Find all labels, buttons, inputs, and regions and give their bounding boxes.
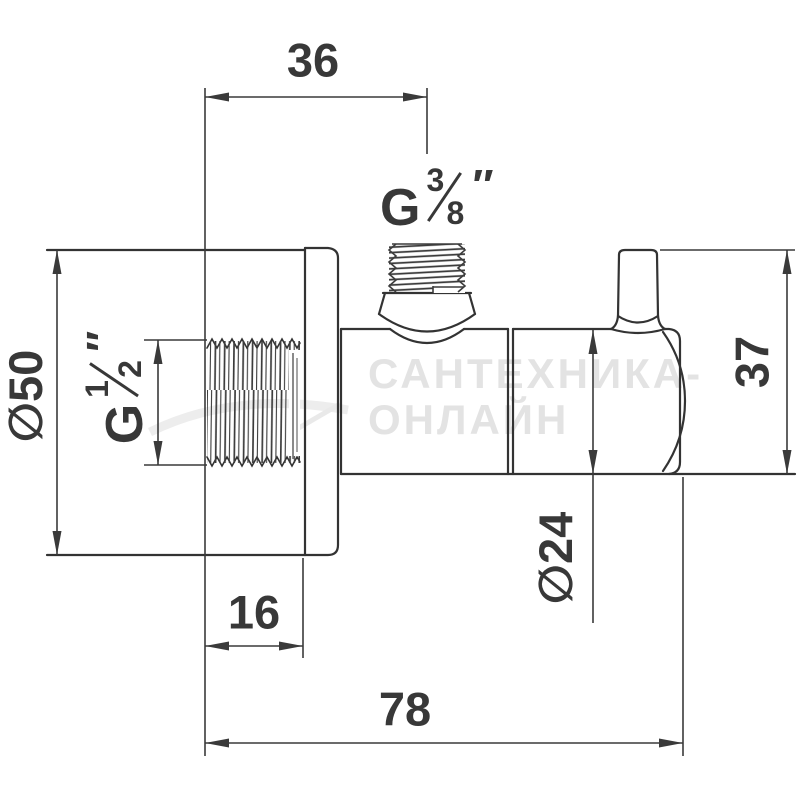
top-port-collar (379, 293, 475, 343)
dim-label-78: 78 (379, 682, 431, 737)
thread-g12-fraction: 1 2 (83, 354, 147, 404)
thread-g12-prefix: G (99, 404, 151, 444)
stem-outline (611, 250, 665, 333)
thread-label-g12: G 1 2 ″ (117, 389, 228, 457)
dim-label-phi50: ∅50 (0, 350, 54, 443)
dim-label-37: 37 (725, 336, 780, 388)
thread-g12-inches: ″ (81, 334, 125, 352)
dim-label-phi24: ∅24 (528, 512, 584, 605)
thread-g38-prefix: G (380, 182, 420, 234)
dim-label-16: 16 (228, 585, 280, 640)
thread-g38-fraction: 3 8 (420, 166, 470, 230)
watermark-line1: САНТЕХНИКА- (368, 350, 703, 397)
watermark-line2: ОНЛАЙН (368, 395, 569, 443)
thread-label-g38: G 3 8 ″ (380, 166, 491, 234)
technical-drawing-canvas: САНТЕХНИКА- ОНЛАЙН (0, 0, 800, 800)
thread-g38-inches: ″ (472, 164, 490, 208)
dim-label-36: 36 (287, 33, 339, 88)
top-port-thread (389, 244, 465, 293)
